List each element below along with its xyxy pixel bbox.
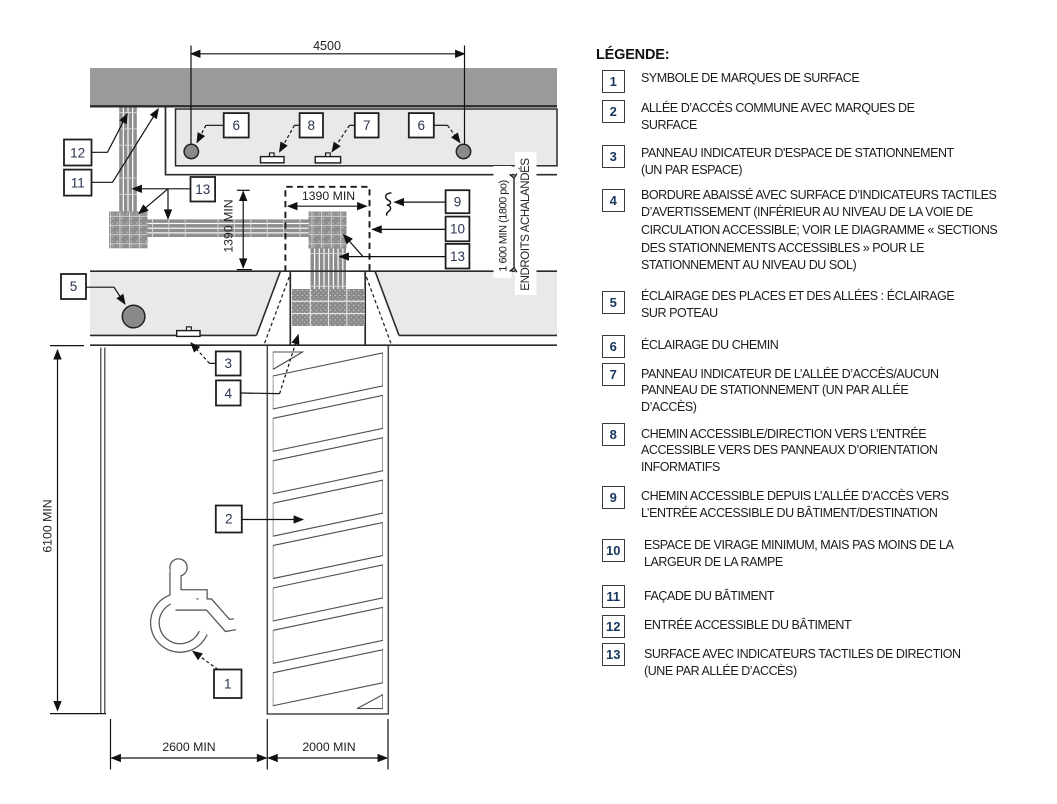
- svg-text:1 600 MIN (1800 po): 1 600 MIN (1800 po): [498, 180, 510, 271]
- svg-text:2600 MIN: 2600 MIN: [162, 740, 215, 754]
- svg-text:13: 13: [450, 249, 465, 264]
- svg-text:12: 12: [70, 145, 85, 160]
- svg-text:1390 MIN: 1390 MIN: [222, 199, 236, 252]
- svg-text:6: 6: [418, 118, 426, 133]
- svg-text:13: 13: [195, 182, 210, 197]
- svg-text:2000 MIN: 2000 MIN: [302, 740, 355, 754]
- svg-text:2: 2: [225, 512, 233, 527]
- svg-text:1390 MIN: 1390 MIN: [302, 189, 355, 203]
- svg-text:11: 11: [71, 175, 85, 190]
- svg-text:9: 9: [454, 194, 462, 209]
- svg-text:10: 10: [450, 222, 465, 237]
- svg-text:7: 7: [363, 118, 371, 133]
- svg-text:8: 8: [308, 118, 316, 133]
- svg-text:1: 1: [224, 677, 232, 692]
- svg-text:5: 5: [70, 279, 78, 294]
- svg-text:ENDROITS ACHALANDÉS: ENDROITS ACHALANDÉS: [519, 158, 532, 291]
- svg-text:6100 MIN: 6100 MIN: [41, 499, 55, 552]
- svg-text:4500: 4500: [313, 39, 341, 53]
- svg-text:6: 6: [232, 118, 240, 133]
- svg-text:3: 3: [224, 356, 232, 371]
- svg-text:4: 4: [225, 386, 233, 401]
